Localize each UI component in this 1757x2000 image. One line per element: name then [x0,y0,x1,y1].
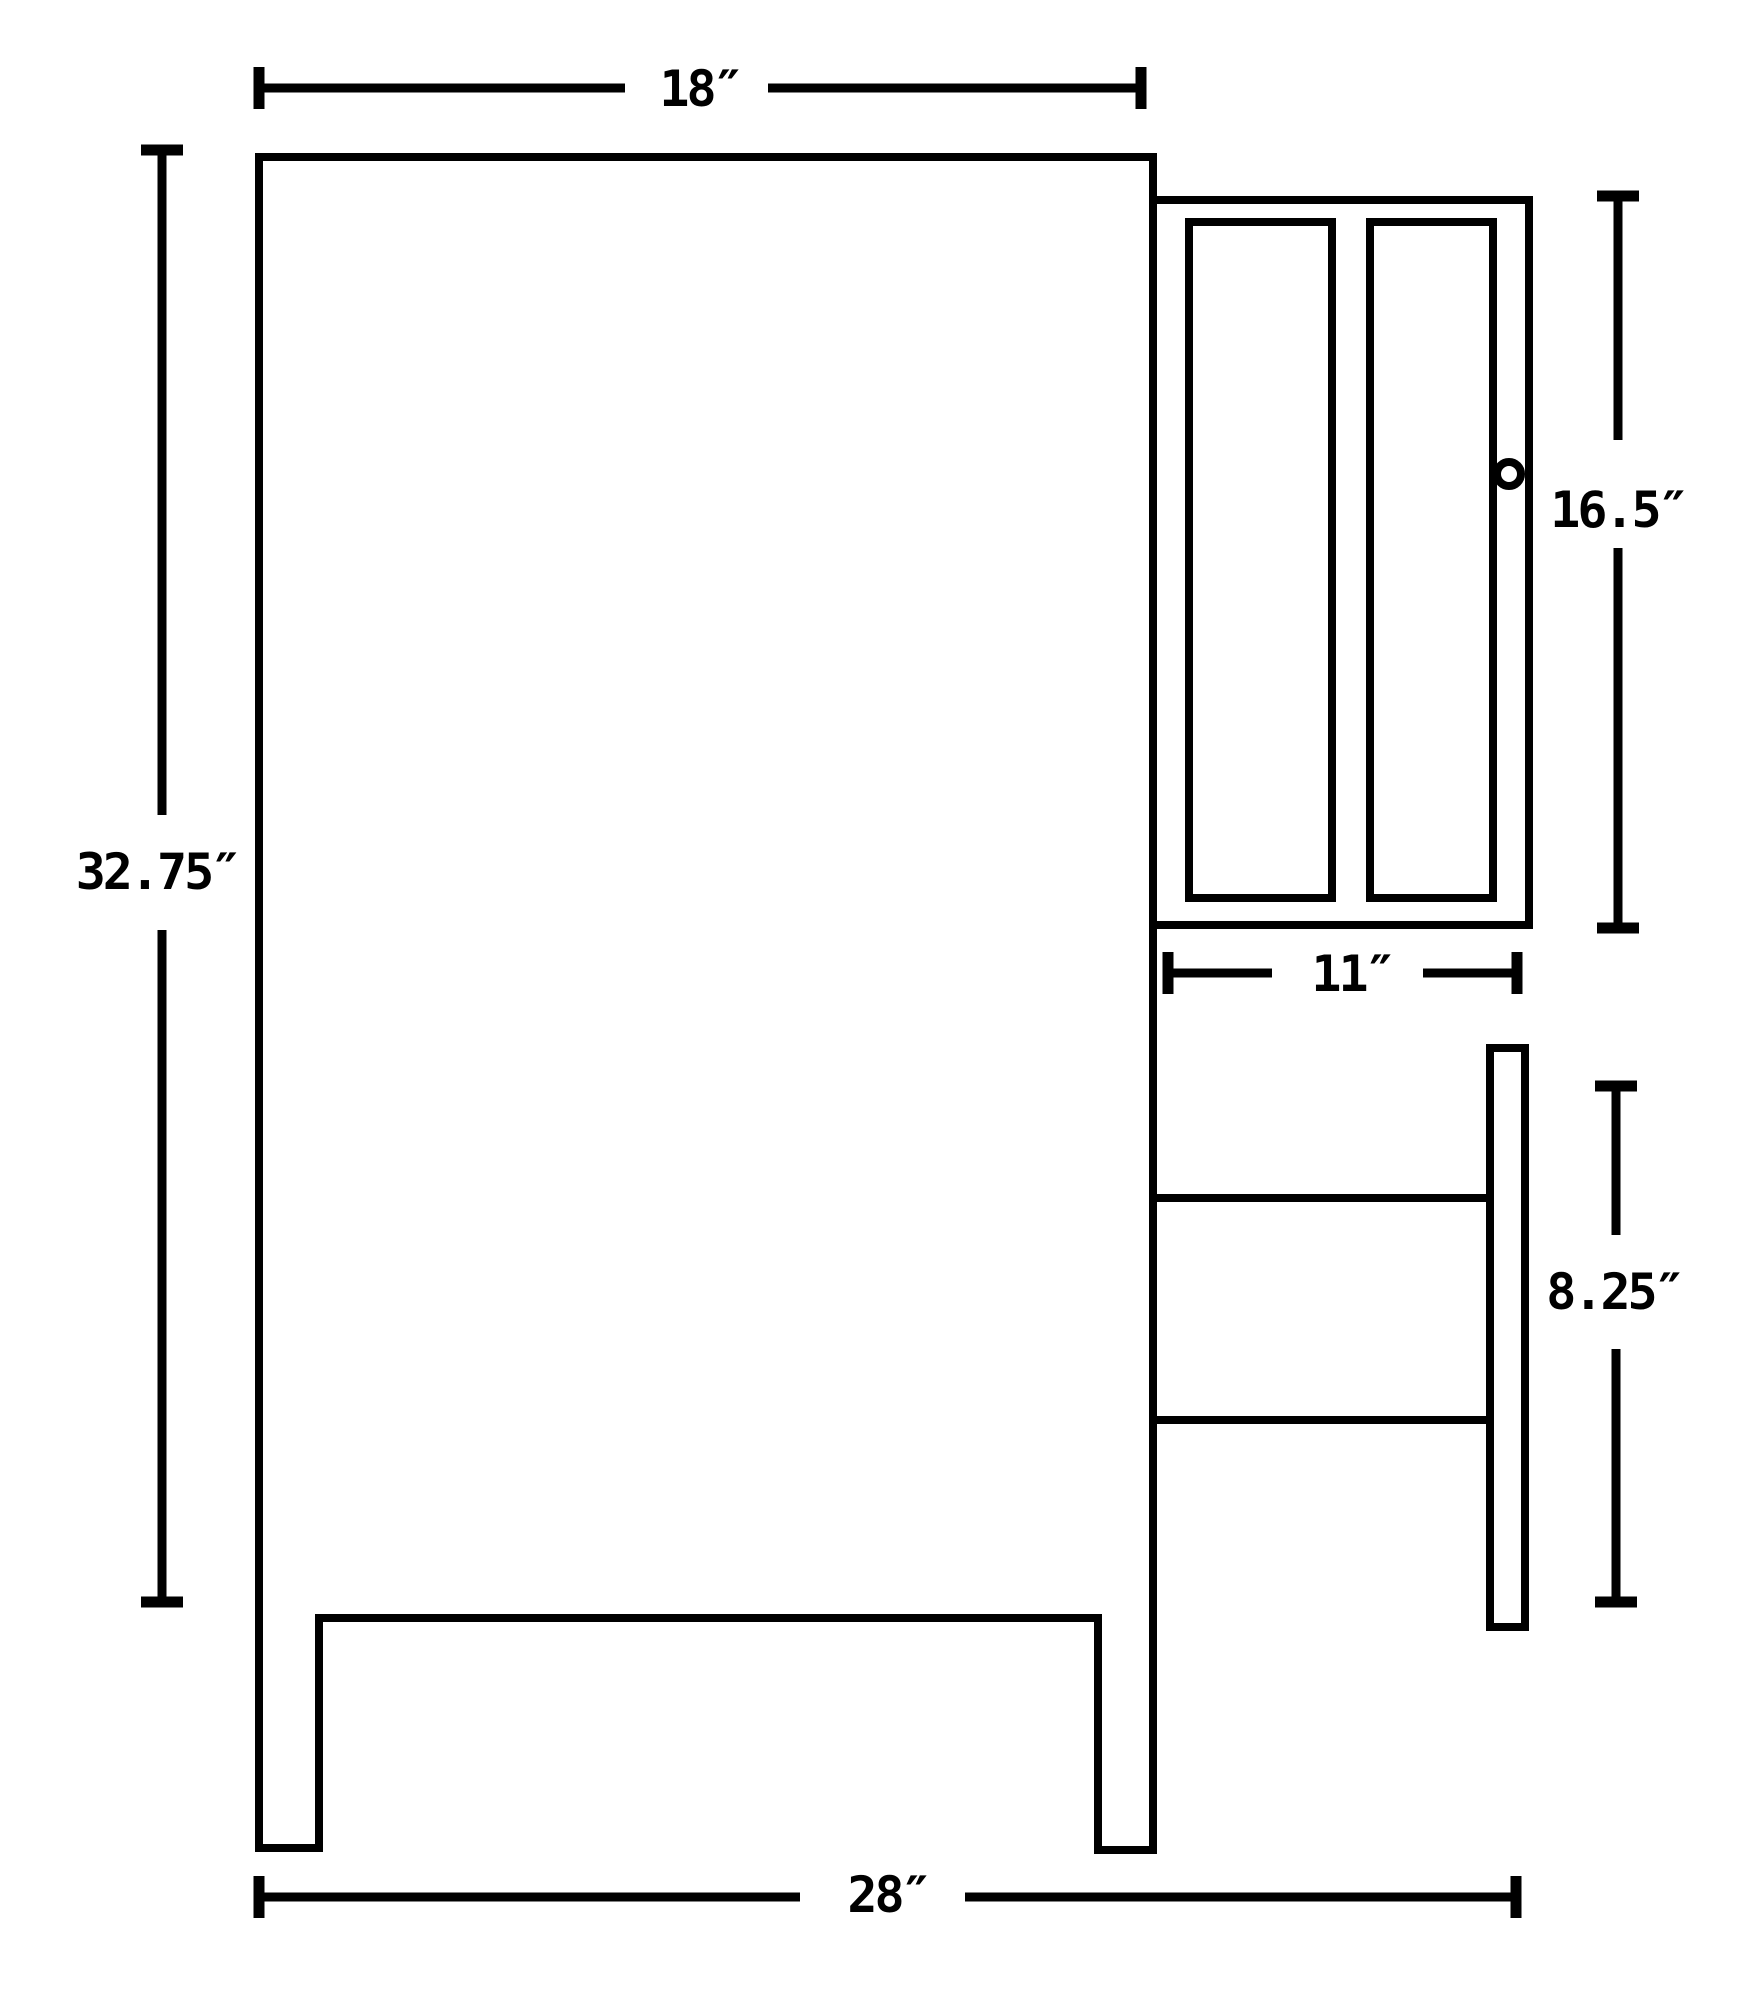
medicine-cabinet [1153,200,1529,925]
medicine-cabinet-outline [1153,200,1529,925]
dimension-overall-width: 28″ [259,1866,1516,1924]
drawer-section [1153,1048,1525,1627]
dim-label-top-width: 18″ [659,60,740,118]
dimension-overall-height: 32.75″ [76,150,239,1602]
dimension-drawer-stack-height: 8.25″ [1546,1086,1682,1602]
drawer-front-panel [1490,1048,1525,1627]
dim-label-overall-height: 32.75″ [76,843,239,901]
cabinet-door-panel-left [1189,222,1332,898]
dimension-cabinet-height: 16.5″ [1550,196,1686,928]
diagram-canvas: 18″ 32.75″ 16.5″ 11″ [0,0,1757,2000]
vanity-body-outline [259,157,1153,1850]
diagram-page: 18″ 32.75″ 16.5″ 11″ [0,0,1757,2000]
dimension-cabinet-width: 11″ [1168,945,1517,1003]
door-knob [1497,462,1521,486]
dimension-top-width: 18″ [259,60,1141,118]
dim-label-drawer-stack-height: 8.25″ [1546,1263,1682,1321]
vanity-body [259,157,1153,1850]
dim-label-cabinet-width: 11″ [1311,945,1392,1003]
dim-label-overall-width: 28″ [847,1866,928,1924]
dim-label-cabinet-height: 16.5″ [1550,481,1686,539]
cabinet-door-panel-right [1370,222,1493,898]
